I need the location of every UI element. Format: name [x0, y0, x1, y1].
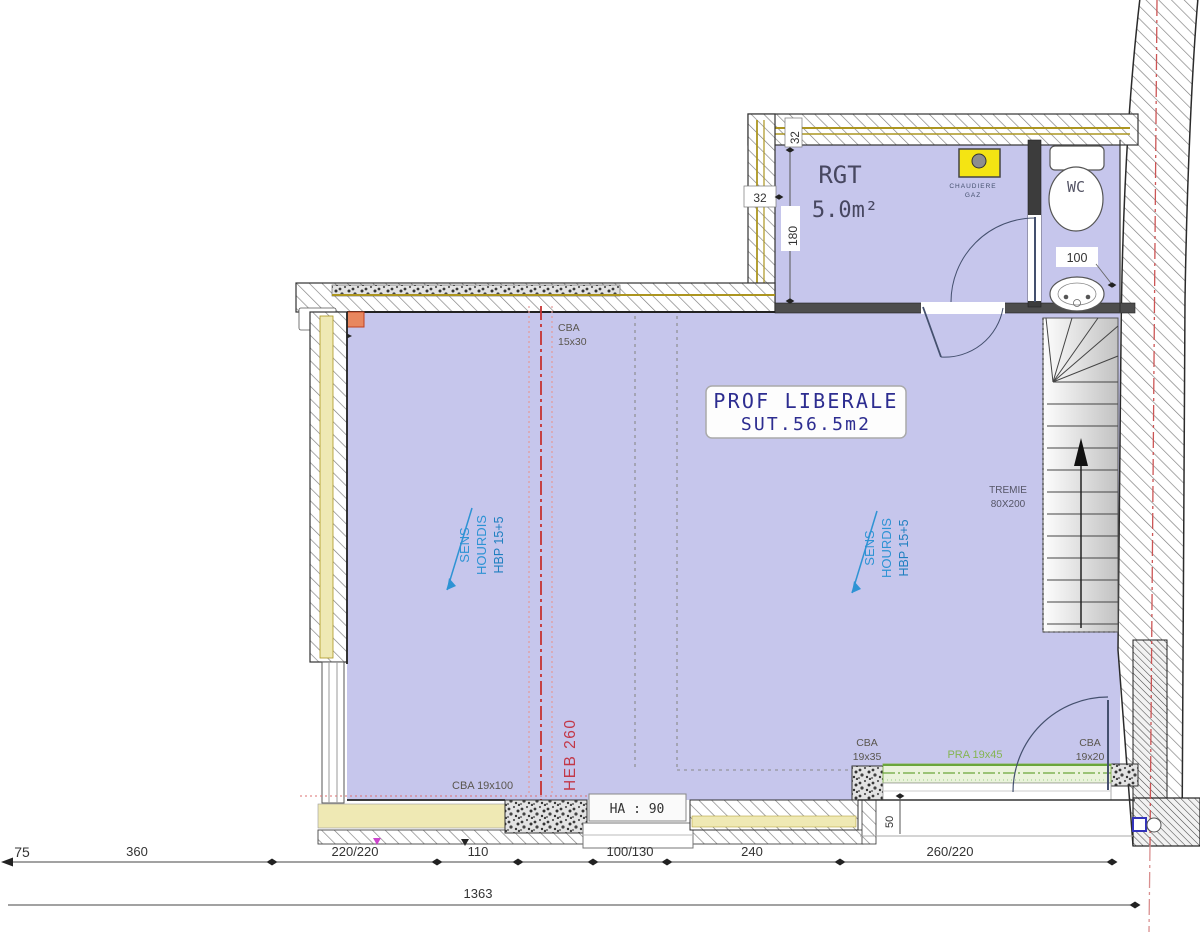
column-marker	[347, 312, 364, 327]
dim-260-220: 260/220	[927, 844, 974, 859]
hbp-label: HBP 15+5	[492, 516, 506, 573]
sill-height-label: HA : 90	[610, 802, 665, 817]
dim-50-label: 50	[884, 816, 896, 828]
floor-plan: .40 CHAUDIERE GAZ WC	[0, 0, 1200, 937]
beam-cba-top-2: 15x30	[558, 336, 587, 348]
hbp-label: HBP 15+5	[897, 519, 911, 576]
dim-110: 110	[468, 844, 489, 859]
dim-32-top: 32	[790, 131, 802, 144]
survey-marker-circle	[1147, 818, 1161, 832]
beam-block-left	[852, 766, 884, 800]
dim-360: 360	[126, 844, 148, 859]
tremie-label-1: TREMIE	[989, 485, 1027, 496]
bottom-window: HA : 90	[583, 794, 693, 848]
main-room-area: SUT.56.5m2	[741, 414, 871, 435]
dim-180: 180	[786, 226, 800, 246]
dim-100-label: 100	[1067, 251, 1088, 265]
beam-block-right	[1111, 764, 1138, 786]
dim-100-130: 100/130	[607, 844, 654, 859]
main-room-title-box: PROF LIBERALE SUT.56.5m2	[706, 386, 906, 438]
left-wall	[310, 312, 347, 664]
concrete-pier	[505, 800, 587, 833]
wc-label: WC	[1067, 178, 1085, 196]
beam-cba-right-2: 19x35	[853, 751, 882, 763]
toilet: WC	[1049, 146, 1104, 231]
staircase	[1043, 318, 1118, 632]
dim-75: 75	[14, 844, 30, 860]
door-opening	[921, 302, 1005, 314]
wc-sink	[1050, 277, 1104, 311]
survey-marker-square	[1133, 818, 1146, 831]
beam-cba-corner-1: CBA	[1079, 737, 1101, 749]
hourdis-label: HOURDIS	[474, 515, 489, 575]
beam-cba-right-1: CBA	[856, 737, 878, 749]
floor-plan-svg: .40 CHAUDIERE GAZ WC	[0, 0, 1200, 937]
beam-cba-corner-2: 19x20	[1076, 751, 1105, 763]
beam-pra: PRA 19x45	[947, 749, 1002, 761]
boiler-label-1: CHAUDIERE	[949, 183, 996, 190]
tremie-label-2: 80X200	[991, 499, 1026, 510]
sens-label: SENS	[457, 527, 472, 563]
beam-heb: HEB 260	[562, 718, 579, 791]
green-lintel	[883, 764, 1111, 783]
beam-cba-top-1: CBA	[558, 322, 580, 334]
dim-240: 240	[741, 844, 763, 859]
dim-total: 1363	[464, 886, 493, 901]
rgt-room-name: RGT	[818, 161, 861, 189]
dim-220-220: 220/220	[332, 844, 379, 859]
beam-cba-left: CBA 19x100	[452, 780, 513, 792]
left-window	[322, 662, 344, 803]
boiler-label-2: GAZ	[965, 192, 981, 199]
insulation-strip	[320, 316, 333, 658]
hourdis-label: HOURDIS	[879, 518, 894, 578]
main-room-name: PROF LIBERALE	[713, 389, 898, 413]
sens-label: SENS	[862, 530, 877, 566]
dim-32-left: 32	[753, 191, 767, 205]
rgt-room-area: 5.0m²	[812, 198, 878, 223]
